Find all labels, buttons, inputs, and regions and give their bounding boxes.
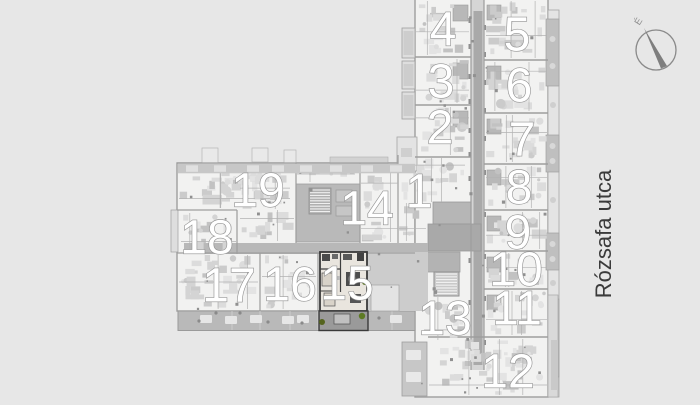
svg-text:2: 2 bbox=[427, 102, 454, 155]
svg-text:3: 3 bbox=[428, 56, 455, 109]
svg-text:6: 6 bbox=[506, 60, 533, 113]
svg-text:Rózsafa utca: Rózsafa utca bbox=[591, 169, 616, 298]
svg-text:13: 13 bbox=[418, 293, 471, 346]
svg-text:11: 11 bbox=[492, 283, 542, 336]
svg-text:14: 14 bbox=[340, 183, 393, 236]
svg-text:16: 16 bbox=[263, 259, 316, 312]
svg-text:17: 17 bbox=[202, 260, 255, 313]
svg-text:15: 15 bbox=[320, 258, 373, 311]
svg-text:19: 19 bbox=[231, 165, 284, 218]
svg-text:18: 18 bbox=[180, 212, 233, 265]
svg-text:12: 12 bbox=[481, 346, 534, 399]
svg-text:4: 4 bbox=[430, 4, 457, 57]
svg-text:1: 1 bbox=[406, 166, 433, 219]
svg-text:5: 5 bbox=[504, 9, 531, 62]
svg-text:7: 7 bbox=[509, 114, 536, 167]
